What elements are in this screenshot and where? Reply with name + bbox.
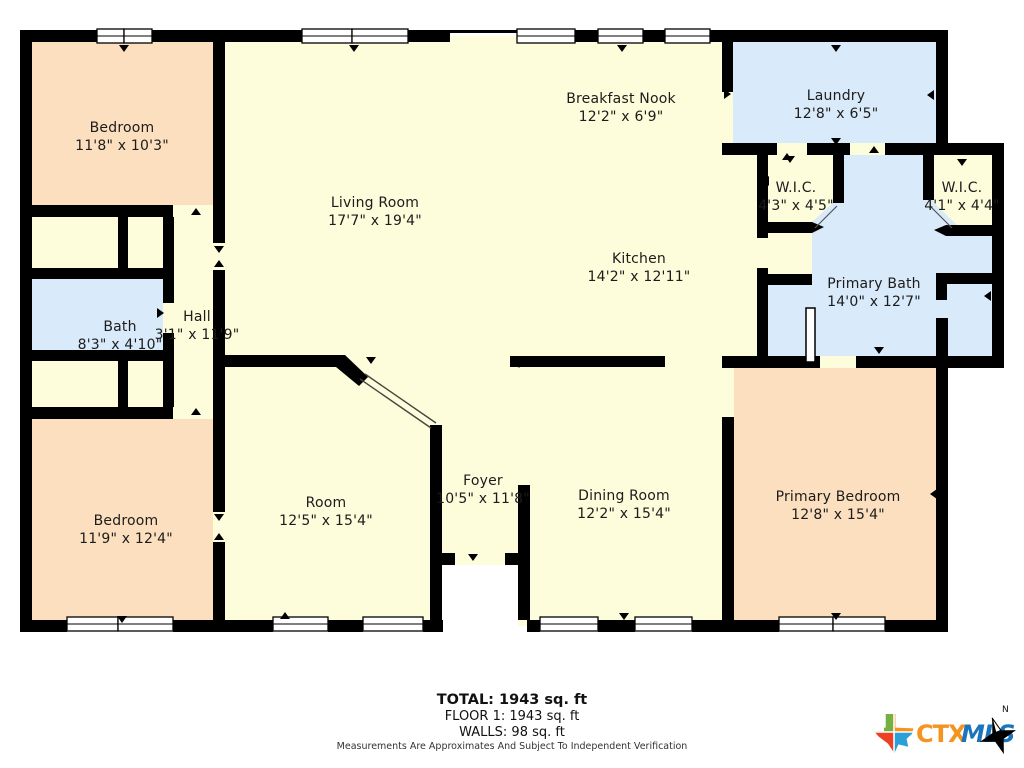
pantry-floor: [768, 233, 812, 274]
room-label-laundry: Laundry 12'8" x 6'5": [794, 87, 879, 123]
room-label-bedroom-1: Bedroom 11'8" x 10'3": [75, 119, 169, 155]
room-label-primary-bath: Primary Bath 14'0" x 12'7": [827, 275, 921, 311]
room-label-wic-left: W.I.C. 4'3" x 4'5": [758, 179, 834, 215]
ctxmls-logo: CTX MLS N: [868, 700, 1020, 764]
room-label-bath: Bath 8'3" x 4'10": [78, 318, 163, 354]
texas-icon: [874, 710, 916, 756]
room-label-bedroom-2: Bedroom 11'9" x 12'4": [79, 512, 173, 548]
shower-door-leaf: [806, 308, 815, 362]
room-label-kitchen: Kitchen 14'2" x 12'11": [588, 250, 691, 286]
room-label-hall: Hall 3'1" x 11'9": [155, 308, 240, 344]
room-label-dining-room: Dining Room 12'2" x 15'4": [577, 487, 671, 523]
room-label-foyer: Foyer 10'5" x 11'8": [436, 472, 530, 508]
room-label-room: Room 12'5" x 15'4": [279, 494, 373, 530]
room-label-wic-right: W.I.C. 4'1" x 4'4": [924, 179, 1000, 215]
room-label-primary-bedroom: Primary Bedroom 12'8" x 15'4": [776, 488, 901, 524]
room-label-breakfast-nook: Breakfast Nook 12'2" x 6'9": [566, 90, 676, 126]
compass-north-label: N: [1002, 705, 1009, 715]
logo-ctx-text: CTX: [916, 720, 967, 748]
entry-porch: [442, 565, 518, 632]
room-label-living-room: Living Room 17'7" x 19'4": [328, 194, 422, 230]
floorplan-page: Bedroom 11'8" x 10'3" Living Room 17'7" …: [0, 0, 1024, 768]
